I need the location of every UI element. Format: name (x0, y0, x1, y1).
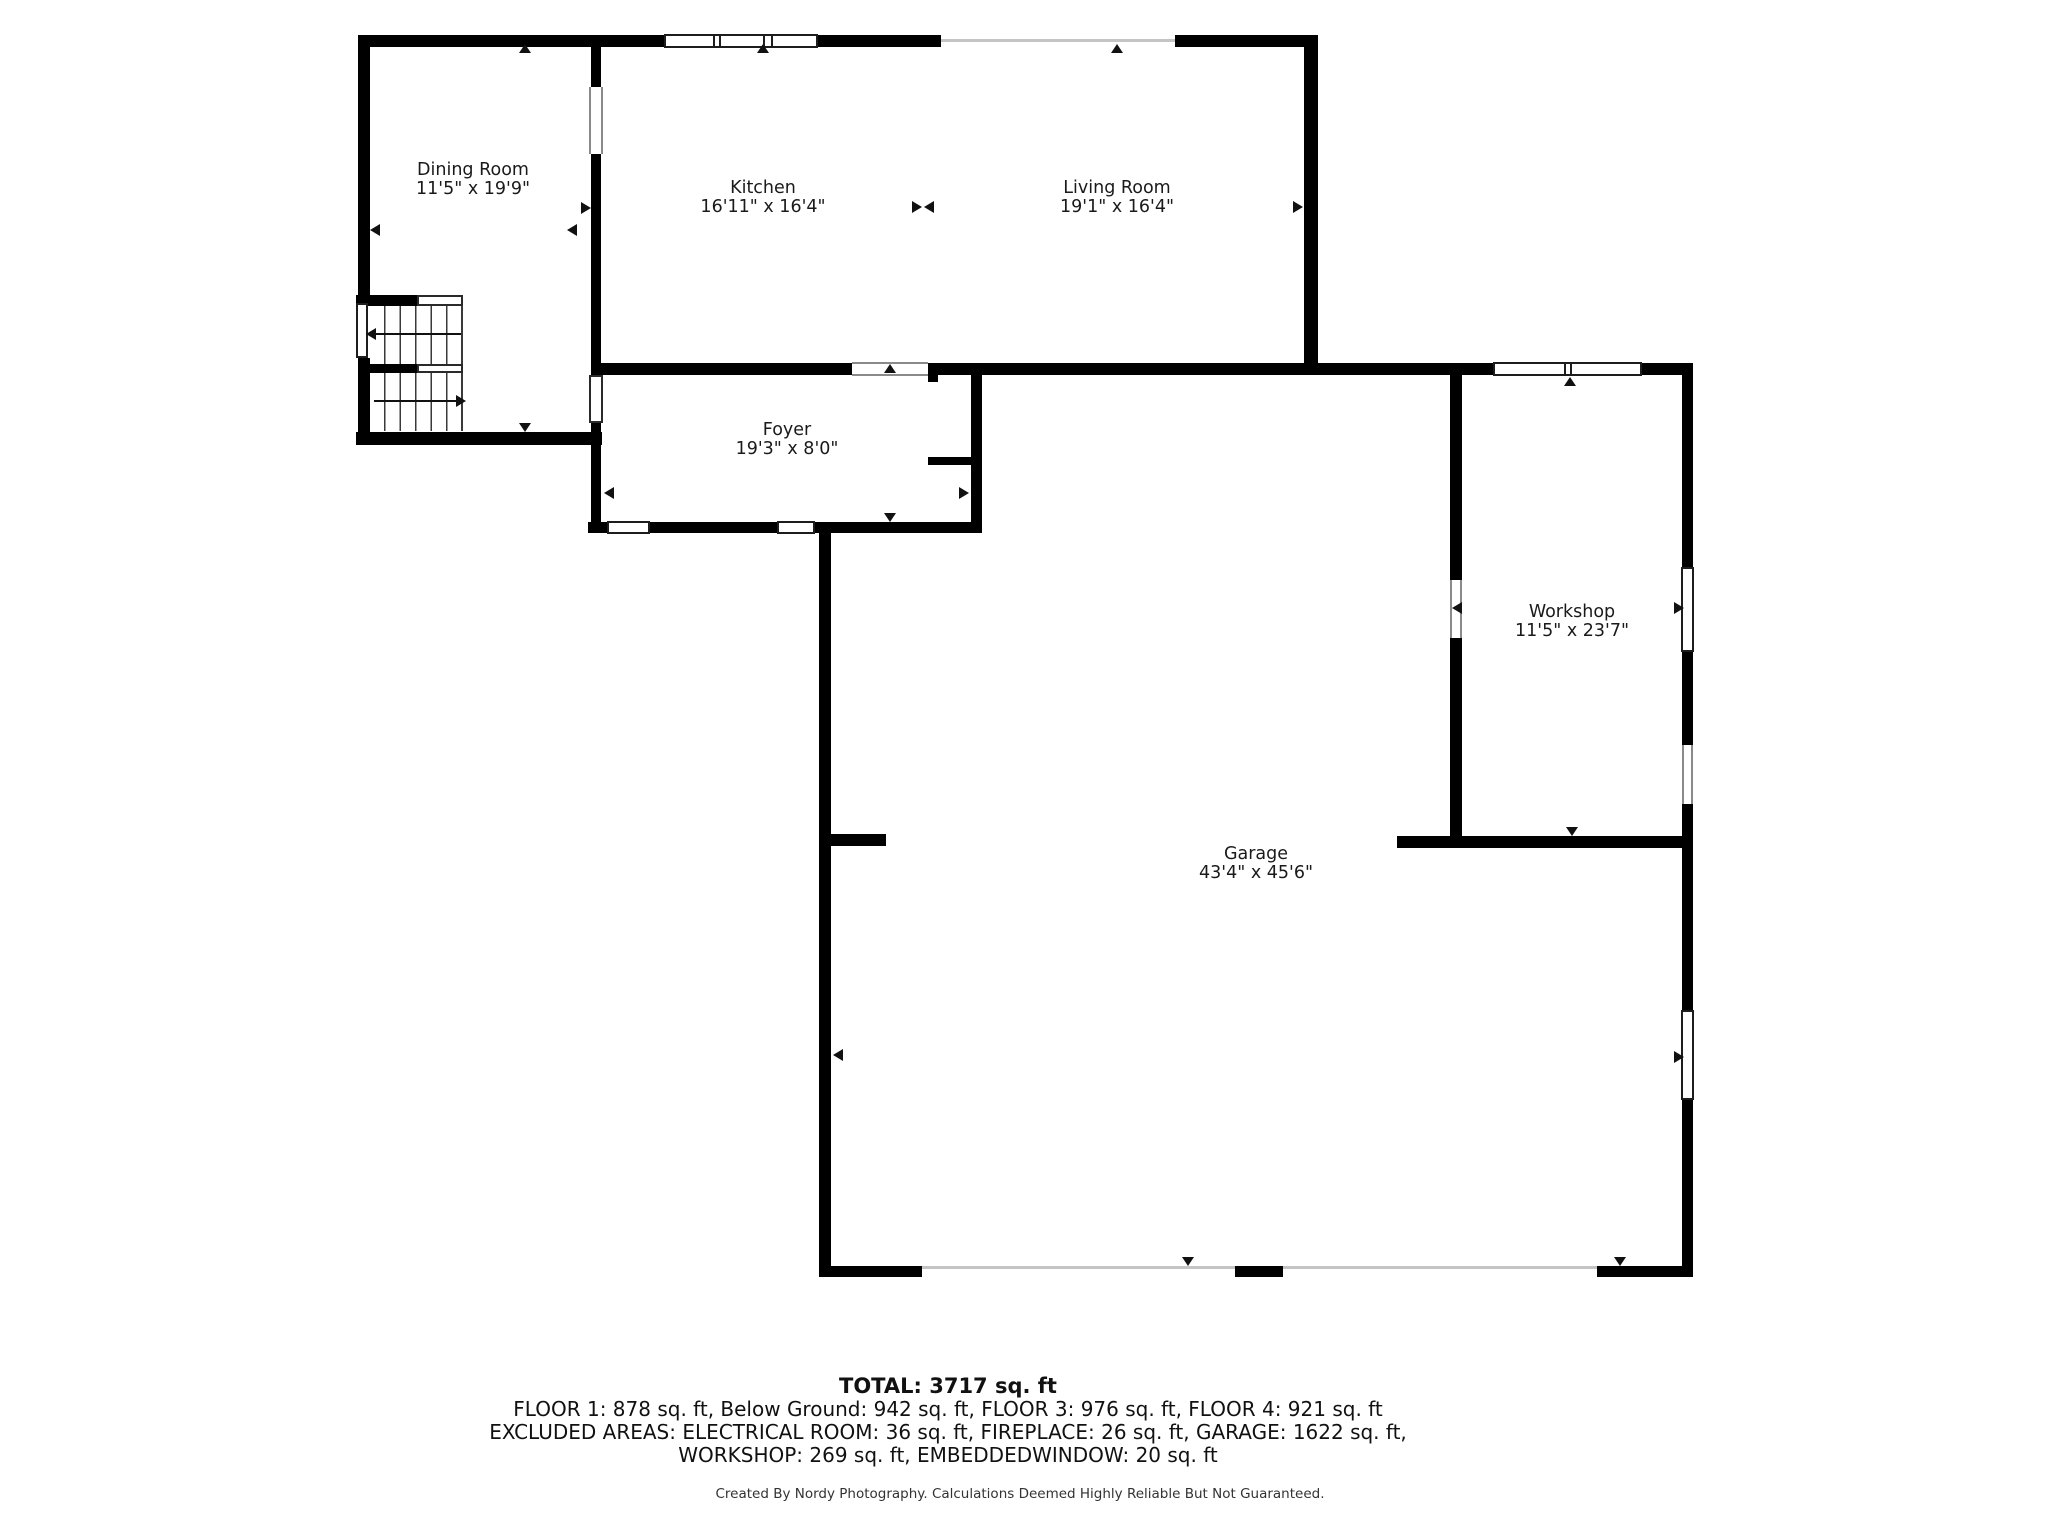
measure-arrow-icon (519, 44, 531, 53)
stair-direction-arrow-icon (456, 395, 466, 407)
stair-landing-edge (417, 364, 463, 373)
excluded-areas-text: EXCLUDED AREAS: ELECTRICAL ROOM: 36 sq. … (489, 1421, 1407, 1444)
window-mullion (771, 34, 773, 48)
window-symbol (777, 521, 815, 534)
room-dimensions: 11'5" x 23'7" (1515, 622, 1629, 641)
wall-segment (1642, 363, 1693, 375)
excluded-areas-text-2: WORKSHOP: 269 sq. ft, EMBEDDEDWINDOW: 20… (489, 1444, 1407, 1467)
stair-direction-arrow-icon (366, 328, 376, 340)
measure-arrow-icon (604, 487, 614, 499)
fireplace-wall (928, 457, 973, 465)
wall-segment (819, 1266, 922, 1277)
wall-segment (1682, 652, 1693, 745)
wall-stub (831, 834, 886, 846)
measure-arrow-icon (1614, 1257, 1626, 1266)
area-summary: TOTAL: 3717 sq. ft FLOOR 1: 878 sq. ft, … (489, 1374, 1407, 1467)
room-dimensions: 43'4" x 45'6" (1199, 864, 1313, 883)
floor-plan: Dining Room 11'5" x 19'9" Kitchen 16'11"… (0, 0, 2048, 1536)
wall-segment (1397, 836, 1693, 848)
window-symbol (1493, 362, 1642, 376)
room-name: Kitchen (700, 179, 825, 198)
door-opening (1682, 745, 1693, 804)
stair-direction-line (374, 400, 456, 402)
fireplace-wall (971, 363, 982, 533)
total-area-text: TOTAL: 3717 sq. ft (489, 1374, 1407, 1398)
wall-segment (1450, 638, 1462, 848)
window-mullion (1570, 362, 1572, 376)
measure-arrow-icon (581, 202, 591, 214)
wall-segment (356, 432, 602, 445)
floor-areas-text: FLOOR 1: 878 sq. ft, Below Ground: 942 s… (489, 1398, 1407, 1421)
room-dimensions: 16'11" x 16'4" (700, 198, 825, 217)
window-mullion (1564, 362, 1566, 376)
measure-arrow-icon (1564, 377, 1576, 386)
room-name: Workshop (1515, 603, 1629, 622)
garage-door-line (922, 1266, 1235, 1269)
room-dimensions: 19'3" x 8'0" (736, 440, 839, 459)
wall-segment (591, 363, 852, 375)
measure-arrow-icon (567, 224, 577, 236)
room-name: Dining Room (416, 161, 530, 180)
wall-segment (358, 364, 417, 373)
fireplace-wall (928, 375, 938, 382)
room-label-dining-room: Dining Room 11'5" x 19'9" (416, 161, 530, 199)
stair-direction-line (376, 333, 461, 335)
wall-segment (358, 35, 370, 303)
measure-arrow-icon (1674, 602, 1684, 614)
door-opening (589, 87, 603, 154)
credit-text: Created By Nordy Photography. Calculatio… (715, 1486, 1324, 1502)
measure-arrow-icon (757, 44, 769, 53)
wall-segment (358, 35, 664, 47)
window-symbol (664, 34, 818, 48)
measure-arrow-icon (884, 364, 896, 373)
garage-door-line (1283, 1266, 1597, 1269)
wall-segment (588, 522, 607, 533)
staircase-upper-flight (370, 306, 463, 364)
measure-arrow-icon (519, 423, 531, 432)
wall-segment (815, 522, 982, 533)
measure-arrow-icon (1111, 44, 1123, 53)
measure-arrow-icon (959, 487, 969, 499)
room-dimensions: 19'1" x 16'4" (1060, 198, 1174, 217)
open-wall-line (941, 39, 1175, 42)
wall-segment (819, 533, 831, 1277)
room-label-living-room: Living Room 19'1" x 16'4" (1060, 179, 1174, 217)
room-dimensions: 11'5" x 19'9" (416, 180, 530, 199)
window-symbol (607, 521, 650, 534)
window-mullion (719, 34, 721, 48)
measure-arrow-icon (1293, 201, 1303, 213)
measure-arrow-icon (833, 1049, 843, 1061)
room-name: Garage (1199, 845, 1313, 864)
room-label-garage: Garage 43'4" x 45'6" (1199, 845, 1313, 883)
room-label-workshop: Workshop 11'5" x 23'7" (1515, 603, 1629, 641)
wall-segment (650, 522, 777, 533)
measure-arrow-icon (370, 224, 380, 236)
room-name: Foyer (736, 421, 839, 440)
wall-segment (1450, 375, 1462, 580)
wall-segment (1175, 35, 1318, 47)
measure-arrow-icon (1452, 602, 1462, 614)
door-opening (589, 375, 603, 423)
measure-arrow-icon (912, 201, 922, 213)
garage-door-pier (1235, 1266, 1283, 1277)
wall-segment (1682, 375, 1693, 567)
wall-segment (1597, 1266, 1693, 1277)
room-label-foyer: Foyer 19'3" x 8'0" (736, 421, 839, 459)
wall-segment (1304, 35, 1318, 375)
room-label-kitchen: Kitchen 16'11" x 16'4" (700, 179, 825, 217)
measure-arrow-icon (1674, 1051, 1684, 1063)
wall-segment (928, 363, 1493, 375)
staircase-lower-flight (370, 373, 463, 431)
measure-arrow-icon (1182, 1257, 1194, 1266)
window-mullion (713, 34, 715, 48)
wall-segment (1682, 804, 1693, 1010)
measure-arrow-icon (884, 513, 896, 522)
measure-arrow-icon (924, 201, 934, 213)
stair-landing-edge (417, 295, 463, 306)
wall-segment (1682, 1100, 1693, 1277)
wall-segment (818, 35, 941, 47)
wall-segment (591, 154, 601, 375)
wall-segment (591, 41, 601, 87)
room-name: Living Room (1060, 179, 1174, 198)
measure-arrow-icon (1566, 827, 1578, 836)
